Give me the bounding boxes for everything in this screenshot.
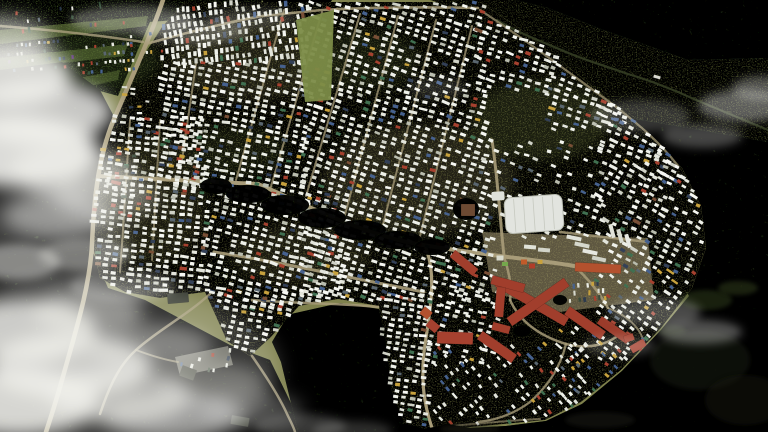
event-tent-hall xyxy=(504,194,564,234)
aerial-scene-canvas xyxy=(0,0,768,432)
service-vehicle xyxy=(497,256,504,261)
service-vehicle xyxy=(502,262,508,266)
aerial-photograph xyxy=(0,0,768,432)
service-vehicle xyxy=(538,260,543,264)
service-vehicle xyxy=(521,260,527,265)
red-roof-building xyxy=(461,204,475,216)
small-tent xyxy=(491,191,505,201)
service-vehicle xyxy=(529,264,535,269)
red-roof-building xyxy=(437,331,473,344)
